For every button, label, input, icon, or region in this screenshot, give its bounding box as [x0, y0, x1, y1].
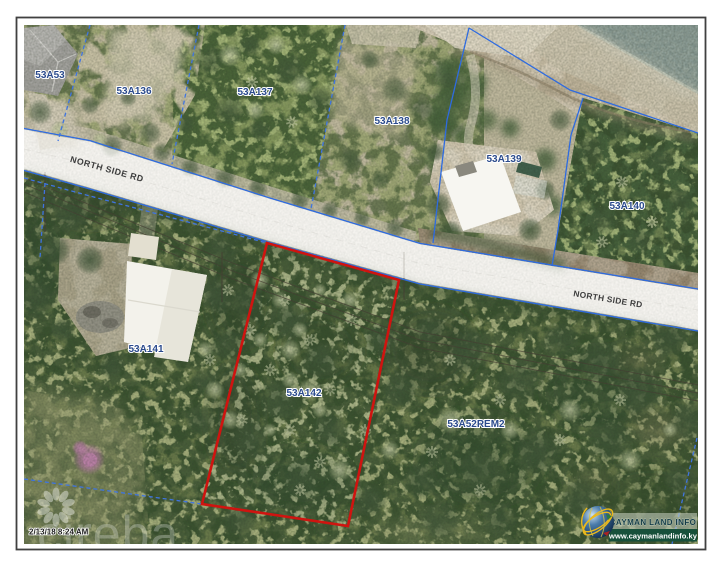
- svg-text:53A53: 53A53: [35, 70, 65, 81]
- svg-text:www.caymanlandinfo.ky: www.caymanlandinfo.ky: [608, 532, 698, 541]
- svg-text:CAYMAN LAND INFO: CAYMAN LAND INFO: [610, 518, 697, 527]
- svg-text:53A137: 53A137: [237, 87, 272, 98]
- svg-text:53A141: 53A141: [128, 344, 163, 355]
- svg-text:2/13/18 8:24 AM: 2/13/18 8:24 AM: [29, 528, 89, 537]
- svg-text:53A139: 53A139: [486, 154, 521, 165]
- svg-text:53A140: 53A140: [609, 201, 644, 212]
- svg-text:53A136: 53A136: [116, 86, 151, 97]
- svg-text:53A52REM2: 53A52REM2: [447, 419, 505, 430]
- svg-text:53A142: 53A142: [286, 388, 321, 399]
- svg-text:53A138: 53A138: [374, 116, 409, 127]
